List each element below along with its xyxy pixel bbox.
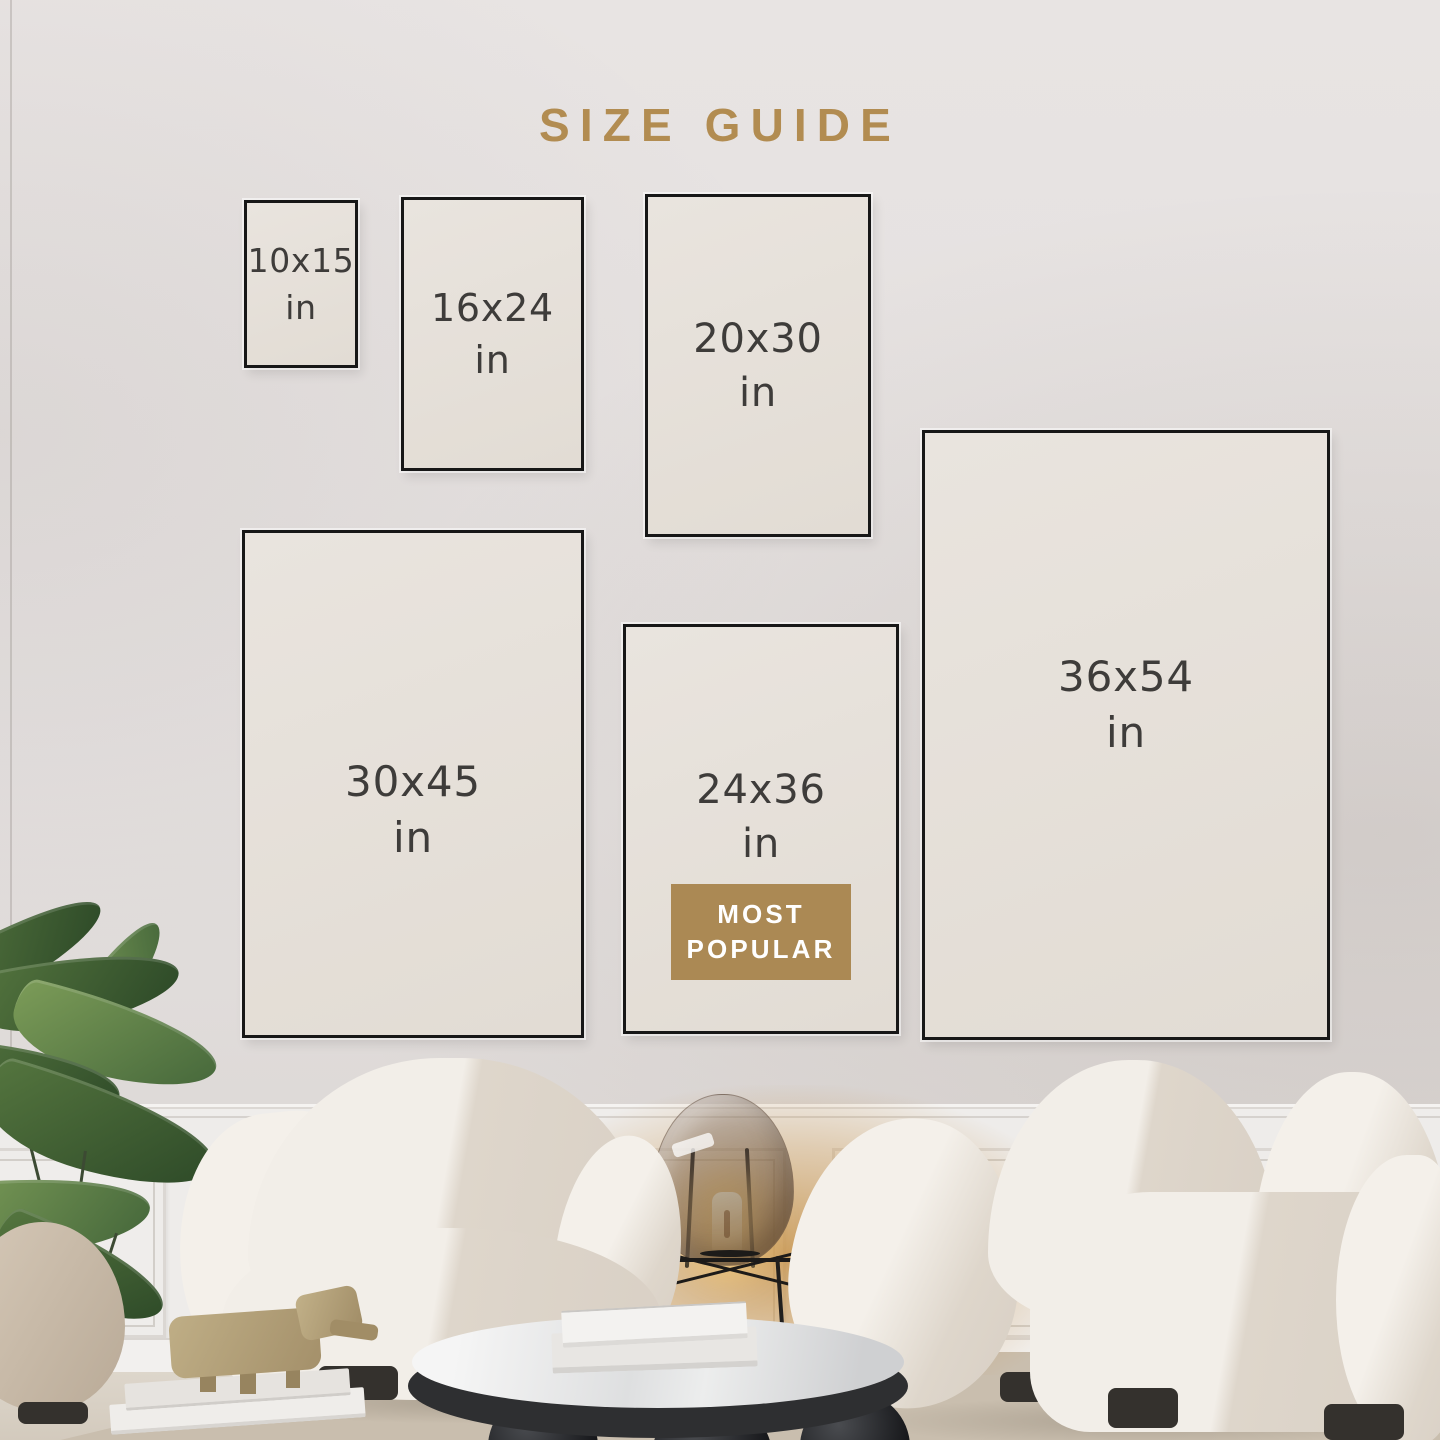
size-label-block: 36x54 in [1058,656,1194,754]
badge-line: POPULAR [671,932,851,967]
size-unit-label: in [393,817,433,859]
size-frame-36x54: 36x54 in [922,430,1330,1040]
page-title: SIZE GUIDE [0,98,1440,152]
size-frame-20x30: 20x30 in [645,194,871,537]
badge-line: MOST [671,897,851,932]
size-frame-16x24: 16x24 in [401,197,584,471]
pouf-foot [18,1402,88,1424]
size-unit-label: in [474,341,510,379]
size-unit-label: in [739,373,777,413]
sofa-foot [1108,1388,1178,1428]
most-popular-badge: MOST POPULAR [671,884,851,980]
size-label-block: 16x24 in [431,289,554,379]
size-guide-scene: SIZE GUIDE 10x15 in 16x24 in 20x30 in 30… [0,0,1440,1440]
size-dims-label: 16x24 [431,289,554,327]
size-frame-30x45: 30x45 in [242,530,584,1038]
size-label-block: 20x30 in [693,319,822,413]
size-frame-10x15: 10x15 in [244,200,358,368]
size-frame-24x36: 24x36 in MOST POPULAR [623,624,899,1034]
size-unit-label: in [285,291,316,324]
size-dims-label: 36x54 [1058,656,1194,698]
size-label-block: 24x36 in MOST POPULAR [671,770,851,980]
lamp-ring [700,1250,760,1257]
size-label-block: 30x45 in [345,761,481,859]
size-dims-label: 30x45 [345,761,481,803]
size-unit-label: in [742,824,780,864]
size-dims-label: 24x36 [696,770,825,810]
size-dims-label: 10x15 [248,244,355,277]
size-label-block: 10x15 in [248,244,355,324]
sofa-foot [1324,1404,1404,1440]
size-dims-label: 20x30 [693,319,822,359]
size-unit-label: in [1106,712,1146,754]
